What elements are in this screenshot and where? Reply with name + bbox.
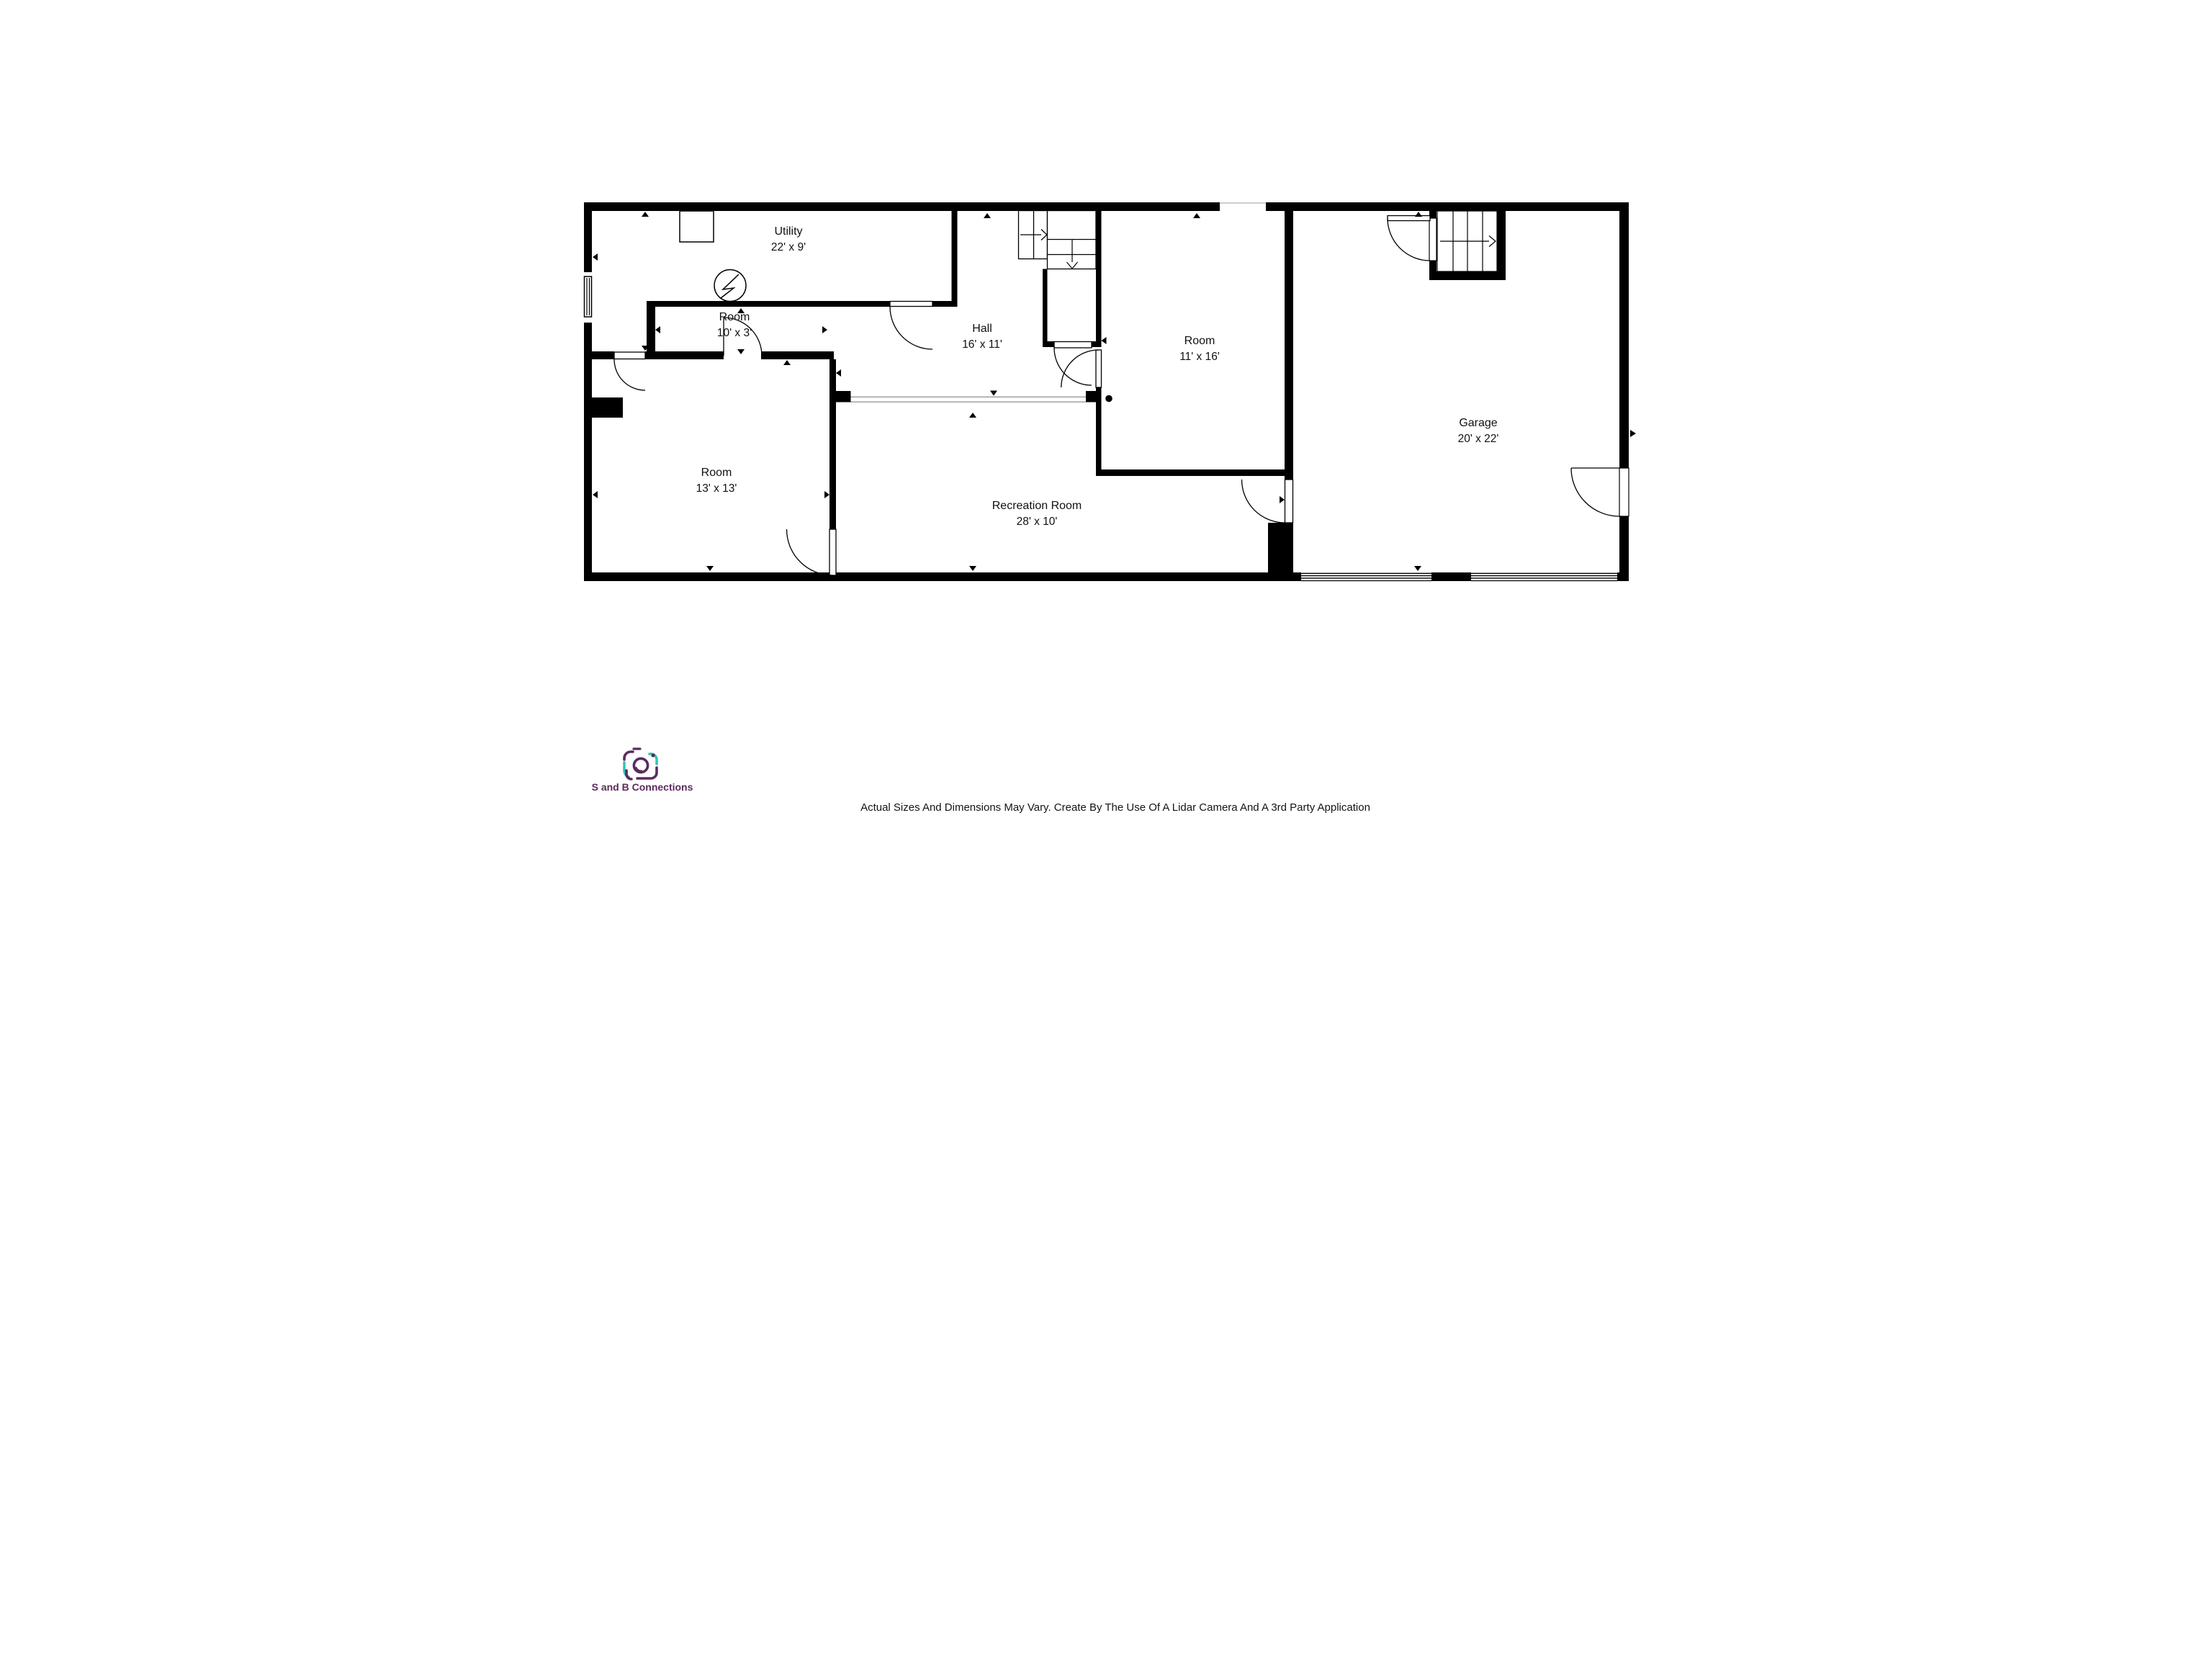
- wall-room11-bottom: [1096, 469, 1293, 476]
- room-label-room13: Room: [701, 467, 732, 479]
- window-left-wall: [583, 272, 593, 323]
- window-garage-bottom-2: [1471, 572, 1617, 581]
- door-arc: [1242, 480, 1285, 523]
- support-column-dot: [1105, 395, 1112, 403]
- door-hall-entry: [890, 302, 932, 350]
- company-logo: S and B Connections: [592, 749, 693, 793]
- wall-rec-door-block: [1268, 523, 1293, 572]
- floor-plan-svg: Utility 22' x 9' Room 10' x 3' Hall 16' …: [553, 0, 1659, 829]
- door-garage-exit: [1571, 468, 1629, 516]
- door-arc: [787, 529, 833, 575]
- wall-closet-top: [647, 301, 834, 307]
- door-arc: [1571, 468, 1619, 516]
- wall-stair-right: [1096, 211, 1102, 341]
- cased-opening-lines: [851, 397, 1087, 402]
- room-label-room11: Room: [1184, 335, 1215, 347]
- door-arc: [1388, 218, 1430, 261]
- room-dims-closet: 10' x 3': [717, 327, 752, 339]
- hall-stairs: [1019, 211, 1097, 269]
- camera-icon: [624, 749, 657, 779]
- room-dims-recreation: 28' x 10': [1017, 516, 1058, 528]
- wall-left-upper: [584, 202, 592, 273]
- wall-vestibule-mid: [834, 301, 890, 307]
- top-gap-line: [1220, 202, 1266, 204]
- room-label-closet: Room: [719, 311, 750, 323]
- floor-plan-page: Utility 22' x 9' Room 10' x 3' Hall 16' …: [553, 0, 1659, 829]
- door-arc: [614, 359, 645, 390]
- appliance-box: [680, 211, 714, 242]
- room-dims-room13: 13' x 13': [696, 482, 737, 495]
- wall-top-left-segment: [584, 202, 1220, 211]
- wall-understair-left: [1043, 269, 1048, 348]
- room-dims-utility: 22' x 9': [771, 241, 806, 253]
- door-arc: [1054, 348, 1092, 385]
- wall-room13-pier: [592, 397, 623, 418]
- wall-bottom-garage-pier: [1431, 572, 1471, 581]
- wall-stair-right-corner: [1092, 341, 1102, 347]
- wall-garage-divider: [1285, 211, 1293, 480]
- room-label-recreation: Recreation Room: [992, 500, 1082, 512]
- wall-vestibule-stub: [932, 301, 958, 307]
- room-label-hall: Hall: [972, 323, 992, 335]
- wall-opening-stub-left: [834, 391, 851, 403]
- disclaimer-text: Actual Sizes And Dimensions May Vary. Cr…: [860, 801, 1370, 814]
- door-understair: [1054, 342, 1092, 386]
- wall-left-lower: [584, 323, 592, 581]
- room-dims-garage: 20' x 22': [1458, 433, 1499, 445]
- door-arc: [1061, 350, 1099, 387]
- room-dims-hall: 16' x 11': [962, 338, 1002, 351]
- wall-utility-hall: [952, 211, 958, 307]
- wall-room13-top-b: [645, 351, 724, 359]
- wall-room13-right: [829, 359, 836, 529]
- room-label-utility: Utility: [774, 225, 802, 238]
- door-stairwell: [1388, 216, 1437, 261]
- garage-stairs: [1437, 211, 1497, 271]
- wall-room11-left-lower: [1096, 387, 1102, 476]
- company-name: S and B Connections: [592, 781, 693, 793]
- wall-bottom-house: [584, 572, 1301, 581]
- door-room13-right: [787, 529, 837, 575]
- wall-stairwell-right: [1497, 211, 1506, 280]
- wall-room13-top-a: [592, 351, 614, 359]
- wall-room13-top-c: [761, 351, 834, 359]
- wall-right-lower: [1619, 516, 1629, 581]
- wall-right-upper: [1619, 202, 1629, 468]
- door-rec-garage: [1242, 480, 1293, 523]
- door-room13-top: [614, 352, 645, 390]
- room-label-garage: Garage: [1459, 417, 1497, 429]
- window-garage-bottom-1: [1301, 572, 1431, 581]
- wall-stairwell-bottom: [1429, 271, 1506, 280]
- electrical-meter-icon: [714, 270, 746, 302]
- wall-understair-bottom: [1048, 341, 1055, 347]
- door-room11: [1061, 350, 1102, 387]
- room-dims-room11: 11' x 16': [1179, 351, 1220, 363]
- door-arc: [890, 307, 932, 349]
- wall-top-right-segment: [1266, 202, 1629, 211]
